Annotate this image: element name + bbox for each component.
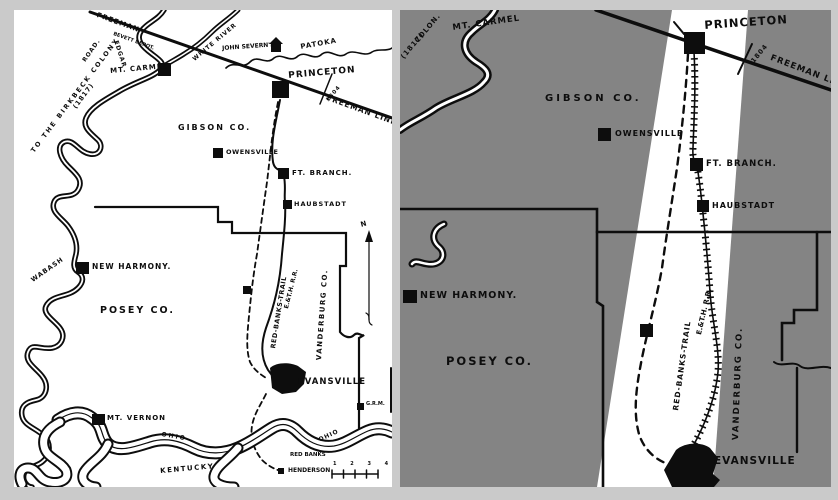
label-ft-branch: FT. BRANCH.	[706, 160, 777, 169]
label-owensville: OWENSVILLE	[226, 149, 278, 156]
north-arrow-icon	[365, 230, 373, 325]
princeton-marker	[684, 32, 705, 54]
label-henderson: HENDERSON	[288, 468, 330, 474]
original-map-panel: FREEMAN BEVETT DEPOT. WHITE RIVER JOHN S…	[14, 10, 392, 487]
label-posey-co: POSEY CO.	[100, 306, 175, 316]
label-owensville: OWENSVILLE	[615, 130, 683, 138]
highlighted-map-panel: COLON. (1817) MT. CARMEL GIBSON CO. OWEN…	[400, 10, 831, 487]
grm-marker	[357, 403, 364, 410]
haubstadt-marker	[697, 200, 709, 212]
label-ft-branch: FT. BRANCH.	[292, 170, 352, 177]
label-scale-numbers: 1 2 3 4	[333, 462, 392, 467]
owensville-marker	[598, 128, 611, 141]
label-posey-co: POSEY CO.	[446, 356, 533, 368]
ft-branch-marker	[690, 158, 703, 171]
highlighted-map-drawing	[400, 10, 831, 487]
label-evansville: EVANSVILLE	[298, 378, 366, 387]
label-gibson-co: GIBSON CO.	[545, 94, 642, 104]
haubstadt-marker	[283, 200, 292, 209]
posey-house-marker	[640, 324, 653, 337]
label-haubstadt: HAUBSTADT	[712, 202, 775, 210]
princeton-marker	[272, 81, 289, 98]
label-mt-vernon: MT. VERNON	[107, 415, 166, 422]
map-comparison-screenshot: FREEMAN BEVETT DEPOT. WHITE RIVER JOHN S…	[0, 0, 838, 500]
new-harmony-marker	[76, 262, 89, 274]
scale-bar	[332, 470, 378, 478]
mt-vernon-marker	[92, 414, 105, 425]
label-evansville: EVANSVILLE	[714, 456, 796, 467]
label-haubstadt: HAUBSTADT	[294, 201, 347, 208]
label-new-harmony: NEW HARMONY.	[420, 291, 517, 301]
original-map-drawing	[14, 10, 392, 487]
label-gibson-co: GIBSON CO.	[178, 124, 251, 132]
new-harmony-marker	[403, 290, 417, 303]
label-new-harmony: NEW HARMONY.	[92, 263, 171, 271]
owensville-marker	[213, 148, 223, 158]
henderson-marker	[278, 468, 284, 474]
patoka-river	[226, 48, 392, 68]
posey-house-marker	[243, 286, 251, 294]
label-red-banks: RED BANKS	[290, 453, 326, 459]
ft-branch-marker	[278, 168, 289, 179]
label-grm: G.R.M.	[366, 402, 385, 407]
